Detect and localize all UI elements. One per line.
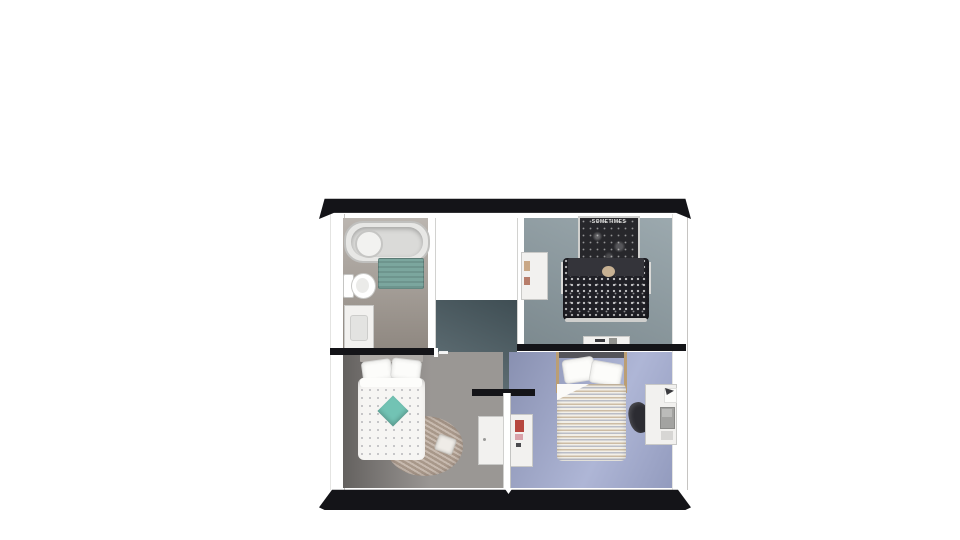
wardrobe-handle bbox=[483, 438, 486, 441]
laptop-screen bbox=[662, 409, 672, 417]
desk-pad bbox=[661, 431, 673, 440]
dresser-item-2 bbox=[524, 277, 530, 285]
sink-vanity bbox=[344, 305, 374, 349]
bed-white bbox=[358, 354, 426, 460]
wall-right bbox=[672, 214, 688, 490]
wardrobe-books-pink bbox=[515, 434, 523, 440]
room-bathroom bbox=[343, 218, 428, 352]
room-bedroom-top-right: SOMETIMES bbox=[524, 218, 672, 344]
wall-divider bbox=[503, 393, 511, 488]
room-bedroom-bottom-left bbox=[343, 352, 503, 488]
floorplan: SOMETIMES bbox=[322, 196, 688, 512]
wardrobe-books-red bbox=[515, 420, 524, 432]
room-bedroom-bottom-right bbox=[509, 352, 672, 488]
sink-basin bbox=[350, 315, 368, 341]
bath-mat bbox=[378, 258, 424, 289]
wall-mid-right bbox=[517, 344, 686, 351]
laptop bbox=[660, 407, 675, 429]
wardrobe bbox=[509, 414, 533, 467]
toilet-bowl bbox=[351, 273, 376, 299]
wall-endcap bbox=[434, 348, 438, 357]
bathtub bbox=[344, 221, 430, 263]
door-threshold-mark bbox=[439, 351, 448, 354]
bed-footboard bbox=[565, 318, 647, 322]
stair-void bbox=[428, 218, 519, 300]
shelf-item-dark bbox=[595, 339, 605, 342]
duvet-striped bbox=[557, 384, 626, 461]
poster-text: SOMETIMES bbox=[580, 220, 638, 225]
dresser-item-1 bbox=[524, 261, 530, 271]
floorplan-canvas: SOMETIMES bbox=[0, 0, 960, 540]
bed-striped bbox=[556, 352, 627, 462]
wardrobe bbox=[478, 416, 505, 465]
bathtub-drain bbox=[355, 230, 383, 258]
desk bbox=[645, 384, 677, 445]
teddy-bear bbox=[602, 266, 615, 277]
dresser bbox=[521, 252, 548, 300]
toilet bbox=[343, 272, 375, 298]
sheet-fold bbox=[557, 384, 589, 400]
duvet-fold bbox=[360, 378, 422, 387]
wardrobe-item-dark bbox=[516, 443, 521, 447]
wall-outer-bottom bbox=[319, 488, 691, 510]
toilet-seat bbox=[356, 278, 369, 293]
wall-mid-left bbox=[330, 348, 434, 355]
